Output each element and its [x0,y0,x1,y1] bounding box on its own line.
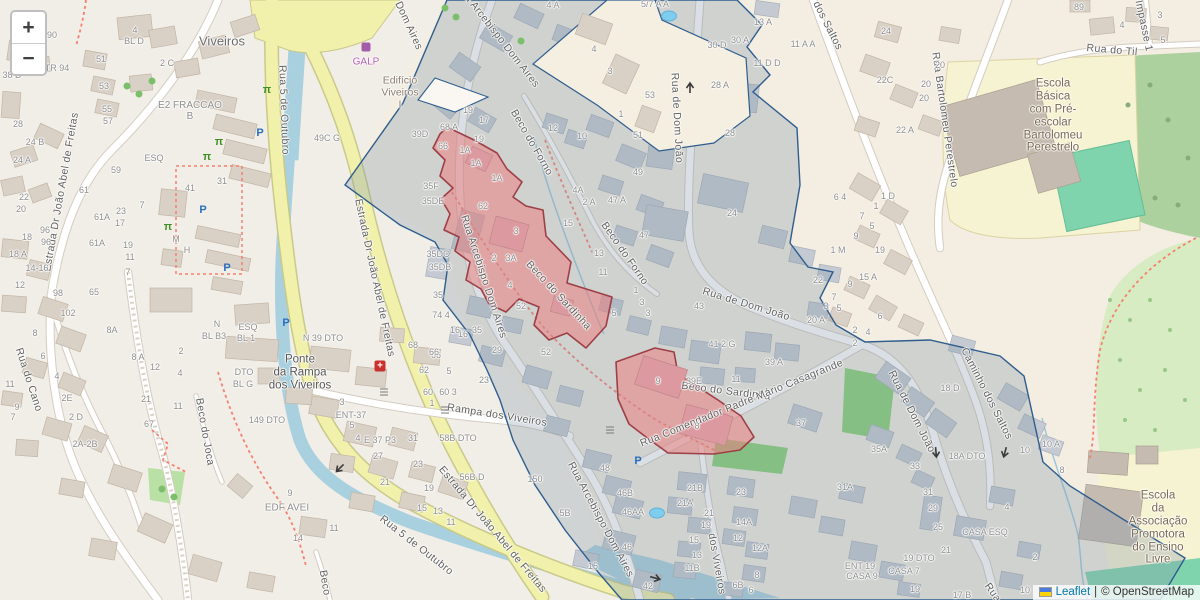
leaflet-link[interactable]: Leaflet [1056,586,1091,598]
zoom-in-button[interactable]: + [12,12,45,43]
leaflet-flag-icon [1039,587,1052,597]
attribution-separator: | [1094,586,1097,598]
openstreetmap-link[interactable]: © OpenStreetMap [1101,586,1194,598]
zoom-control: + − [10,10,47,76]
zoom-out-button[interactable]: − [12,43,45,74]
map-graphics [0,0,1200,600]
map-canvas[interactable]: Estrada Dr João Abel de FreitasRua 5 de … [0,0,1200,600]
attribution-bar: Leaflet | © OpenStreetMap [1033,585,1200,600]
